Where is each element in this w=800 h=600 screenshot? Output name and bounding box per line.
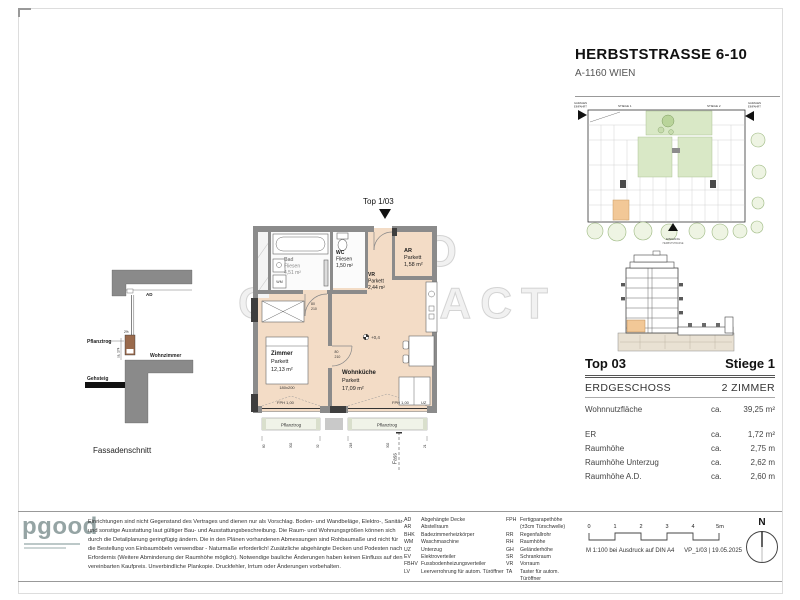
legend-term: (±3cm Türschwelle) (520, 524, 565, 531)
project-address: A-1160 WIEN (575, 68, 635, 79)
data-prefix: ca. (711, 458, 727, 467)
height-dim: ca. 174 (117, 347, 121, 358)
footer-divider-bottom (18, 581, 782, 582)
wohnkueche-name: Wohnküche (342, 370, 377, 376)
plan-sheet: HERBSTSTRASSE 6-10 A-1160 WIEN IMMO CONT… (0, 0, 800, 600)
legend-term: Schrankraum (520, 554, 551, 561)
legend-term: Leerverrohrung für autom. Türöffner (421, 569, 504, 576)
data-label: ER (585, 430, 711, 439)
door-height: 210 (335, 355, 341, 359)
legend-row: FPH Fertigparapethöhe (506, 517, 578, 524)
svg-text:3: 3 (665, 524, 668, 530)
svg-text:EINFAHRT: EINFAHRT (748, 105, 761, 109)
legend-row: RR Regenfallrohr (506, 532, 578, 539)
data-label: Raumhöhe A.D. (585, 472, 711, 481)
bad-name: Bad (284, 257, 293, 263)
wohnzimmer-label: Wohnzimmer (150, 353, 181, 359)
disclaimer-line: durch die Detailplanung geringfügig ände… (88, 536, 403, 545)
kitchen-counter-icon (426, 282, 437, 332)
disclaimer-line: Einrichtungen sind nicht Gegenstand des … (88, 518, 403, 527)
svg-text:210: 210 (311, 307, 317, 311)
level-label: +0,4 (371, 335, 380, 340)
radiator-icon (324, 260, 328, 286)
section-unit-highlight (627, 320, 645, 332)
bed-size-label: 180x200 (279, 385, 295, 390)
disclaimer-line: die Bestellung von Einbaumöbeln verwendb… (88, 545, 403, 554)
data-label: Raumhöhe (585, 444, 711, 453)
legend-row: FBHV Fussbodenheizungsverteiler (404, 561, 504, 568)
north-arrow: N (738, 514, 786, 568)
legend-abbr: RH (506, 539, 520, 546)
scale-labels: 0 1 2 3 4 5m (587, 524, 724, 530)
unit-pointer-label: Top 1/03 (363, 197, 394, 206)
legend-term: Unterzug (421, 547, 442, 554)
legend-row: SR Schrankraum (506, 554, 578, 561)
legend-term: Geländerhöhe (520, 547, 553, 554)
legend-term: Abstellraum (421, 524, 448, 531)
section-roof (634, 255, 667, 262)
disclaimer-line: vereinbarten Kaufpreis. Unverbindliche P… (88, 563, 403, 572)
toilet-cistern-icon (337, 233, 348, 239)
print-scale: M 1:100 bei Ausdruck auf DIN A4 (586, 548, 674, 554)
svg-text:1,58 m²: 1,58 m² (404, 262, 423, 268)
data-prefix: ca. (711, 472, 727, 481)
footer-divider-top (18, 511, 782, 512)
staircase: Stiege 1 (725, 356, 775, 371)
floor-level: ERDGESCHOSS (585, 382, 671, 394)
data-label: Raumhöhe Unterzug (585, 458, 711, 467)
legend-abbr: AD (404, 517, 421, 524)
svg-text:302: 302 (386, 442, 390, 448)
legend-row: VR Vorraum (506, 561, 578, 568)
section-setback-floor (630, 262, 674, 268)
legend-term: Fussbodenheizungsverteiler (421, 561, 486, 568)
fph-left-label: FPH 1,00 (277, 400, 295, 405)
section-roof-structure (653, 251, 660, 255)
site-unit-highlight (613, 200, 629, 220)
legend-abbr: FPH (506, 517, 520, 524)
legend-abbr: RR (506, 532, 520, 539)
garage-entry-arrow-right (745, 111, 754, 121)
section-parapets (688, 323, 720, 327)
dim-label: 80 (262, 444, 266, 448)
legend-abbr: LV (404, 569, 421, 576)
svg-text:1,50 m²: 1,50 m² (336, 263, 353, 269)
ar-name: AR (404, 248, 412, 254)
garage-right-label: GARAGEN (748, 101, 761, 105)
svg-text:12,13 m²: 12,13 m² (271, 367, 293, 373)
disclaimer-line: und sonstige Ausstattung laut gültiger B… (88, 527, 403, 536)
site-stair-core (672, 148, 680, 153)
dimension-ticks (262, 436, 427, 441)
data-value: 39,25 m² (727, 405, 775, 414)
data-prefix: ca. (711, 430, 727, 439)
legend-abbr: SR (506, 554, 520, 561)
legend-term: Fertigparapethöhe (520, 517, 562, 524)
level-marker-icon (363, 334, 369, 340)
legend-row: TA Taster für autom. Türöffner (506, 569, 578, 584)
svg-text:EINFAHRT: EINFAHRT (574, 105, 587, 109)
legend-row: RH Raumhöhe (506, 539, 578, 546)
legend-row: UZ Unterzug (404, 547, 504, 554)
garage-left-label: GARAGEN (574, 101, 587, 105)
unit-data-row: Raumhöhe A.D. ca. 2,60 m (585, 472, 775, 481)
legend-abbr: TA (506, 569, 520, 584)
facade-caption: Fassadenschnitt (93, 446, 151, 455)
company-logo: pgood (22, 514, 98, 540)
stiege2-label: STIEGE 2 (707, 104, 721, 108)
disclaimer-line: Erfordernis (Weitere Abminderung der Rau… (88, 554, 403, 563)
data-prefix: ca. (711, 405, 727, 414)
legend-abbr: WM (404, 539, 421, 546)
unit-info-panel: Top 03 Stiege 1 ERDGESCHOSS 2 ZIMMER Woh… (585, 356, 775, 486)
data-value: 2,62 m (727, 458, 775, 467)
svg-text:21: 21 (423, 444, 427, 448)
planter-left-label: Pflanztrog (281, 423, 302, 428)
building-section (603, 248, 743, 356)
data-label: Wohnnutzfläche (585, 405, 711, 414)
legend-row: AD Abgehängte Decke (404, 517, 504, 524)
door-width: 80 (335, 350, 339, 354)
fph-right-label: FPH 1,00 (392, 400, 410, 405)
legend-row: (±3cm Türschwelle) (506, 524, 578, 531)
legend-abbr (506, 524, 520, 531)
legend-row: BHK Badezimmerheizkörper (404, 532, 504, 539)
legend-term: Raumhöhe (520, 539, 545, 546)
room-count: 2 ZIMMER (722, 382, 775, 394)
svg-text:Parkett: Parkett (271, 359, 289, 365)
svg-text:32: 32 (316, 444, 320, 448)
data-value: 2,75 m (727, 444, 775, 453)
entrance-label: EINGANG (666, 237, 681, 241)
chair-icon (403, 355, 409, 363)
legend-abbr: UZ (404, 547, 421, 554)
data-value: 1,72 m² (727, 430, 775, 439)
svg-text:17,09 m²: 17,09 m² (342, 386, 364, 392)
legend-row: WM Waschmaschine (404, 539, 504, 546)
street-label: HERBSTSTRASSE (663, 242, 684, 245)
logo-tagline-bar (24, 547, 66, 549)
scale-bar: 0 1 2 3 4 5m (586, 521, 746, 547)
svg-text:302: 302 (289, 442, 293, 448)
plan-reference: VP_1/03 | 19.05.2025 (684, 548, 742, 554)
svg-text:Fliesen: Fliesen (336, 257, 352, 263)
legend-row: GH Geländerhöhe (506, 547, 578, 554)
unit-data-rows: Wohnnutzfläche ca. 39,25 m² ER ca. 1,72 … (585, 405, 775, 481)
scale-note: M 1:100 bei Ausdruck auf DIN A4 VP_1/03 … (586, 548, 750, 554)
svg-text:Parkett: Parkett (404, 255, 422, 261)
svg-text:Parkett: Parkett (342, 378, 360, 384)
data-prefix: ca. (711, 444, 727, 453)
svg-text:2,44 m²: 2,44 m² (368, 285, 385, 291)
svg-text:Parkett: Parkett (368, 279, 384, 285)
stiege1-label: STIEGE 1 (618, 104, 632, 108)
legend-term: Vorraum (520, 561, 540, 568)
unit-data-row: ER ca. 1,72 m² (585, 430, 775, 439)
unit-data-row: Wohnnutzfläche ca. 39,25 m² (585, 405, 775, 414)
sidewalk (85, 382, 125, 388)
logo-tagline-bar (24, 543, 80, 545)
legend-abbr: AR (404, 524, 421, 531)
tree-icon (662, 115, 674, 127)
svg-text:80: 80 (311, 302, 315, 306)
section-wing-end (725, 317, 733, 333)
svg-text:4,51 m²: 4,51 m² (284, 270, 301, 276)
planter-label: Pflanztrog (87, 339, 111, 345)
gehsteig-label: Gehsteig (87, 376, 108, 382)
zimmer-name: Zimmer (271, 351, 293, 357)
tree-icon (658, 127, 664, 133)
planter-right-label: Pflanztrog (377, 423, 398, 428)
project-title: HERBSTSTRASSE 6-10 (575, 46, 747, 63)
planter-drain (127, 349, 134, 354)
site-plan: STIEGE 1 STIEGE 2 GARAGEN EINFAHRT GARAG… (573, 96, 783, 248)
disclaimer-text: Einrichtungen sind nicht Gegenstand des … (88, 518, 403, 572)
legend-term: Abgehängte Decke (421, 517, 465, 524)
legend-row: EV Elektroverteiler (404, 554, 504, 561)
wm-label: WM (276, 280, 282, 284)
wc-name: WC (336, 250, 345, 256)
data-value: 2,60 m (727, 472, 775, 481)
uz-label: UZ (421, 400, 427, 405)
svg-text:4: 4 (691, 524, 694, 530)
fass-label: Fass (393, 453, 399, 464)
corner-mark (18, 8, 20, 17)
toilet-icon (338, 240, 347, 251)
legend-row: AR Abstellraum (404, 524, 504, 531)
legend-abbr: EV (404, 554, 421, 561)
unit-pointer-arrow (379, 209, 391, 219)
site-elevator-core (710, 180, 716, 188)
legend-term: Badezimmerheizkörper (421, 532, 474, 539)
legend-term: Regenfallrohr (520, 532, 551, 539)
suspended-ceiling-detail (127, 289, 133, 293)
chair-icon (403, 341, 409, 349)
legend-abbr: FBHV (404, 561, 421, 568)
svg-text:218: 218 (349, 442, 353, 448)
site-elevator-core (620, 180, 626, 188)
svg-text:2: 2 (639, 524, 642, 530)
dining-table-icon (409, 336, 434, 366)
legend-term: Waschmaschine (421, 539, 459, 546)
vr-name: VR (368, 272, 375, 278)
scale-steps (589, 533, 719, 540)
legend-abbr: GH (506, 547, 520, 554)
svg-text:Fliesen: Fliesen (284, 264, 300, 270)
legend-abbr: VR (506, 561, 520, 568)
north-label: N (758, 517, 765, 528)
legend-row: LV Leerverrohrung für autom. Türöffner (404, 569, 504, 576)
abbreviation-legend-col2: FPH Fertigparapethöhe (±3cm Türschwelle)… (506, 517, 578, 584)
svg-text:0: 0 (587, 524, 590, 530)
unit-number: Top 03 (585, 356, 626, 371)
legend-term: Elektroverteiler (421, 554, 456, 561)
garage-entry-arrow-left (578, 110, 587, 120)
unit-data-row: Raumhöhe ca. 2,75 m (585, 444, 775, 453)
unit-data-row: Raumhöhe Unterzug ca. 2,62 m (585, 458, 775, 467)
slope-label: 2% (124, 330, 129, 334)
svg-text:5m: 5m (716, 524, 724, 530)
abbreviation-legend-col1: AD Abgehängte Decke AR Abstellraum BHK B… (404, 517, 504, 576)
legend-abbr: BHK (404, 532, 421, 539)
floor-plan: Bad Fliesen 4,51 m² WC Fliesen 1,50 m² V… (243, 196, 448, 486)
tree-icon (669, 130, 674, 135)
facade-section: AD 2% Pflanztrog ca. 174 Wohnzimmer Gehs… (85, 265, 245, 465)
svg-text:1: 1 (613, 524, 616, 530)
legend-term: Taster für autom. Türöffner (520, 569, 578, 584)
ad-label: AD (146, 292, 153, 297)
lower-slab-wall (125, 360, 193, 423)
